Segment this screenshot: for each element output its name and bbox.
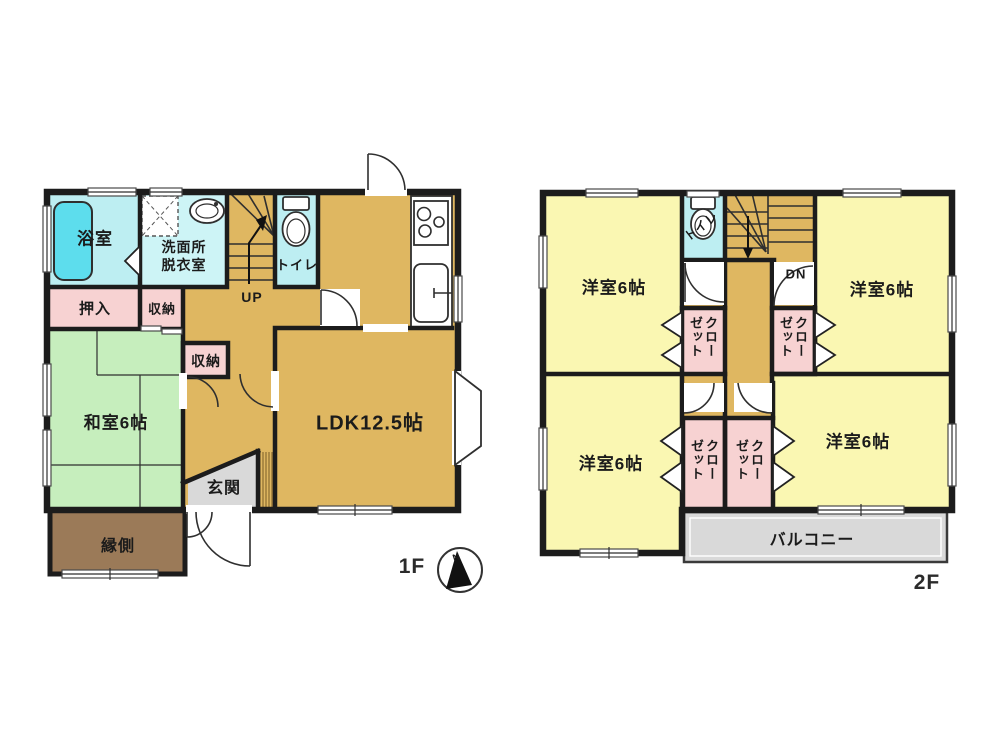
label-storage-mid: 収納 <box>191 351 221 371</box>
label-stairs-down: DN <box>786 267 807 282</box>
label-stairs-up: UP <box>241 289 262 305</box>
label-veranda: 縁側 <box>101 532 135 556</box>
label-balcony: バルコニー <box>770 526 855 550</box>
label-washroom-1: 洗面所 <box>162 237 207 257</box>
closet-label-text: クローゼット <box>734 439 764 489</box>
label-storage-top: 収納 <box>148 299 176 318</box>
washer-pan-icon <box>142 196 178 236</box>
label-room-tr: 洋室6帖 <box>850 276 914 301</box>
closet-label-bl: クローゼット <box>689 439 719 489</box>
entrance-step <box>258 451 274 508</box>
label-floor-2f: 2F <box>914 571 941 595</box>
label-entrance: 玄関 <box>207 474 241 498</box>
washbasin-icon <box>190 199 224 223</box>
floorplan-page: { "colors": { "wall": "#1c1c1c", "ldk_ha… <box>0 0 1000 750</box>
label-room-br: 洋室6帖 <box>826 428 890 453</box>
closet-label-text: クローゼット <box>689 439 719 489</box>
closet-label-tl: クローゼット <box>688 316 718 366</box>
bay-window <box>452 371 481 465</box>
floor-1f <box>43 154 481 580</box>
label-bath: 浴室 <box>77 225 113 250</box>
closet-label-tr: クローゼット <box>778 316 808 366</box>
kitchen-counter <box>411 196 452 328</box>
toilet-icon-1f <box>283 197 310 246</box>
closet-label-text: クローゼット <box>778 316 808 366</box>
label-room-bl: 洋室6帖 <box>579 450 643 475</box>
label-tatami-room: 和室6帖 <box>84 409 148 434</box>
label-room-tl: 洋室6帖 <box>582 274 646 299</box>
closet-label-text: クローゼット <box>688 316 718 366</box>
stove-icon <box>414 201 448 245</box>
label-floor-1f: 1F <box>399 555 426 579</box>
label-oshiire: 押入 <box>79 298 111 319</box>
floorplan-drawing <box>0 0 1000 750</box>
label-ldk: LDK12.5帖 <box>316 407 424 436</box>
label-washroom-2: 脱衣室 <box>162 255 207 275</box>
label-toilet-1f: トイレ <box>276 255 318 274</box>
closet-label-br: クローゼット <box>734 439 764 489</box>
floor-2f <box>539 189 956 562</box>
